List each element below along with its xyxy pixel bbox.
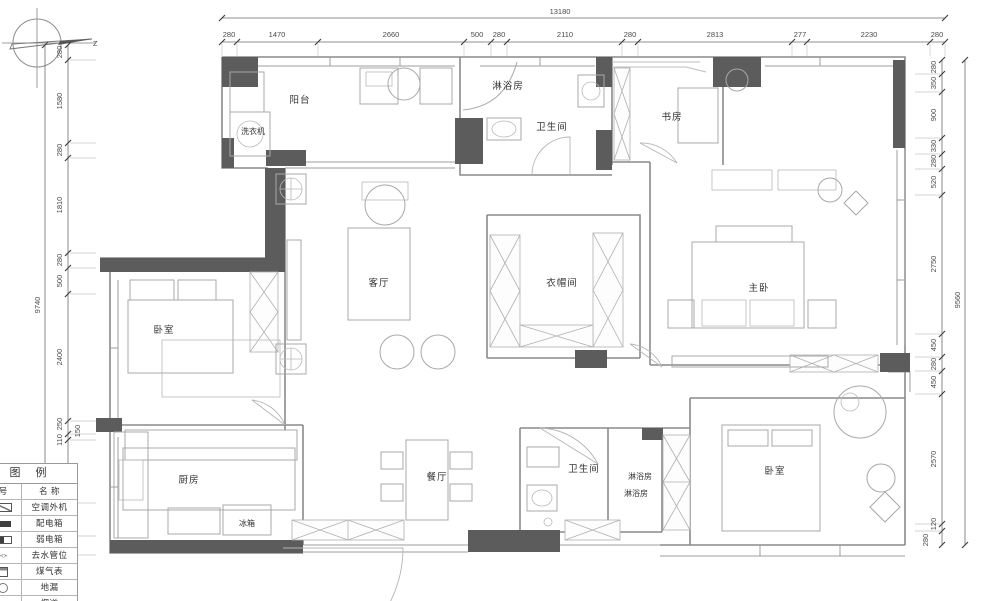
drain-pipe-icon: -○-	[0, 548, 7, 563]
room-label-kitchen: 厨房	[178, 474, 199, 486]
accent-stool	[870, 492, 900, 522]
legend-row: -○- 去水管位	[0, 548, 77, 564]
room-label-shower-bottom-2: 淋浴房	[624, 488, 648, 498]
balcony-table	[388, 68, 420, 100]
bath-window-hatch	[565, 520, 620, 540]
pillow	[772, 430, 812, 446]
svg-text:280: 280	[55, 254, 64, 267]
legend-row: 地漏	[0, 580, 77, 596]
svg-text:280: 280	[929, 155, 938, 168]
bath-bottom-door-arc	[540, 428, 598, 464]
svg-text:110: 110	[55, 434, 64, 446]
headboard	[716, 226, 792, 242]
room-label-balcony: 阳台	[289, 94, 310, 106]
legend-col-symbol: 号	[0, 484, 22, 499]
ac-outdoor-unit-icon	[0, 503, 12, 512]
legend-row: 烟道	[0, 596, 77, 601]
floor-drain-icon	[0, 583, 8, 593]
compass-letter: Z	[93, 39, 98, 48]
master-sill-hatch	[790, 355, 878, 372]
room-label-dining: 餐厅	[426, 471, 447, 483]
svg-text:450: 450	[929, 339, 938, 352]
legend-row: 空调外机	[0, 500, 77, 516]
room-label-shower-bottom-1: 淋浴房	[628, 471, 652, 481]
distribution-box-icon	[0, 521, 11, 527]
floor-drain	[544, 518, 552, 526]
room-label-study: 书房	[661, 111, 682, 123]
label-fridge: 冰箱	[239, 518, 255, 528]
room-label-bath-top: 卫生间	[536, 121, 568, 133]
svg-text:1470: 1470	[269, 30, 286, 39]
pillow	[130, 280, 174, 300]
side-chair	[380, 335, 414, 369]
svg-text:2230: 2230	[861, 30, 878, 39]
legend-row: 弱电箱	[0, 532, 77, 548]
dimension-chain-top: 13180 280 1470 2660 500 280 2110 280 281…	[219, 7, 948, 56]
chair	[867, 464, 895, 492]
pillow	[728, 430, 768, 446]
svg-text:2750: 2750	[929, 256, 938, 273]
bath-top-door-arc	[532, 137, 570, 175]
nightstand	[808, 300, 836, 328]
dim-overall-height-left: 9740	[33, 297, 42, 314]
weak-current-box-icon	[0, 536, 12, 544]
kitchen-worktop	[123, 448, 295, 510]
dining-chair	[450, 484, 472, 501]
svg-text:500: 500	[55, 275, 64, 288]
dining-chair	[381, 484, 403, 501]
svg-text:250: 250	[55, 418, 64, 431]
bed	[722, 425, 820, 531]
floor-plan-page: Z 13180 280 1470 2660 500 280 2110 280 2…	[0, 0, 1008, 601]
svg-text:900: 900	[929, 109, 938, 122]
room-label-shower-top: 淋浴房	[492, 80, 524, 92]
legend-title: 图 例	[0, 464, 77, 484]
pillow	[178, 280, 216, 300]
dining-chair	[381, 452, 403, 469]
svg-text:280: 280	[493, 30, 506, 39]
svg-text:2400: 2400	[55, 349, 64, 366]
svg-text:280: 280	[931, 30, 944, 39]
accent-stool	[844, 191, 868, 215]
north-compass-icon: Z	[2, 8, 98, 88]
study-bookshelf-hatch	[614, 68, 630, 160]
room-label-bedroom-left: 卧室	[153, 324, 174, 336]
svg-text:1580: 1580	[55, 93, 64, 110]
entry-window-hatch	[292, 520, 404, 540]
room-label-cloakroom: 衣帽间	[546, 277, 578, 289]
svg-text:280: 280	[929, 358, 938, 371]
room-label-master: 主卧	[748, 282, 769, 294]
round-table	[834, 386, 886, 438]
side-chair	[421, 335, 455, 369]
floor-plan-canvas: Z 13180 280 1470 2660 500 280 2110 280 2…	[0, 0, 1008, 601]
room-label-living: 客厅	[368, 277, 389, 289]
toilet	[527, 485, 557, 511]
legend-row: 煤气表	[0, 564, 77, 580]
balcony-seat	[420, 68, 452, 104]
duct-hatch	[663, 435, 690, 530]
svg-text:2813: 2813	[707, 30, 724, 39]
room-label-bath-bottom: 卫生间	[568, 463, 600, 475]
svg-text:2110: 2110	[557, 30, 573, 39]
study-door-arc	[640, 143, 677, 163]
legend-table: 图 例 号 名 称 空调外机 配电箱 弱电箱 -○- 去水管位 煤气表 地漏	[0, 463, 78, 601]
svg-text:500: 500	[471, 30, 484, 39]
svg-text:277: 277	[794, 30, 807, 39]
svg-text:2570: 2570	[929, 451, 938, 468]
washbasin	[527, 447, 559, 467]
svg-text:330: 330	[929, 140, 938, 153]
svg-text:120: 120	[929, 518, 938, 531]
legend-row: 配电箱	[0, 516, 77, 532]
svg-text:1810: 1810	[55, 197, 64, 214]
dim-overall-width: 13180	[550, 7, 571, 16]
label-washer: 洗衣机	[241, 126, 265, 136]
tv-console	[287, 240, 301, 340]
nightstand	[668, 300, 694, 328]
master-door-arc	[630, 344, 662, 367]
svg-text:280: 280	[55, 46, 64, 59]
svg-text:2660: 2660	[383, 30, 400, 39]
svg-text:280: 280	[223, 30, 236, 39]
dining-chair	[450, 452, 472, 469]
svg-text:520: 520	[929, 176, 938, 189]
stove	[168, 508, 220, 534]
dimension-chain-right: 9560 280 350 900 330 280 520 2750 450 28…	[915, 57, 968, 548]
svg-text:280: 280	[55, 144, 64, 157]
armchair	[365, 185, 405, 225]
entry-door-arc	[283, 548, 403, 601]
living-rug	[348, 228, 410, 320]
cloakroom-closet-hatch	[490, 233, 623, 347]
svg-text:280: 280	[929, 61, 938, 74]
bedroom-left-door-arc	[252, 400, 285, 425]
room-label-bedroom-right: 卧室	[764, 465, 785, 477]
desk	[678, 88, 718, 143]
bed	[128, 300, 233, 373]
svg-text:150: 150	[73, 425, 82, 438]
legend-col-name: 名 称	[22, 484, 77, 499]
dim-overall-height-right: 9560	[953, 292, 962, 309]
gas-meter-icon	[0, 567, 8, 577]
svg-text:450: 450	[929, 376, 938, 389]
svg-text:280: 280	[921, 534, 930, 547]
svg-text:280: 280	[624, 30, 637, 39]
kitchen-counter	[125, 430, 297, 460]
svg-text:350: 350	[929, 77, 938, 90]
